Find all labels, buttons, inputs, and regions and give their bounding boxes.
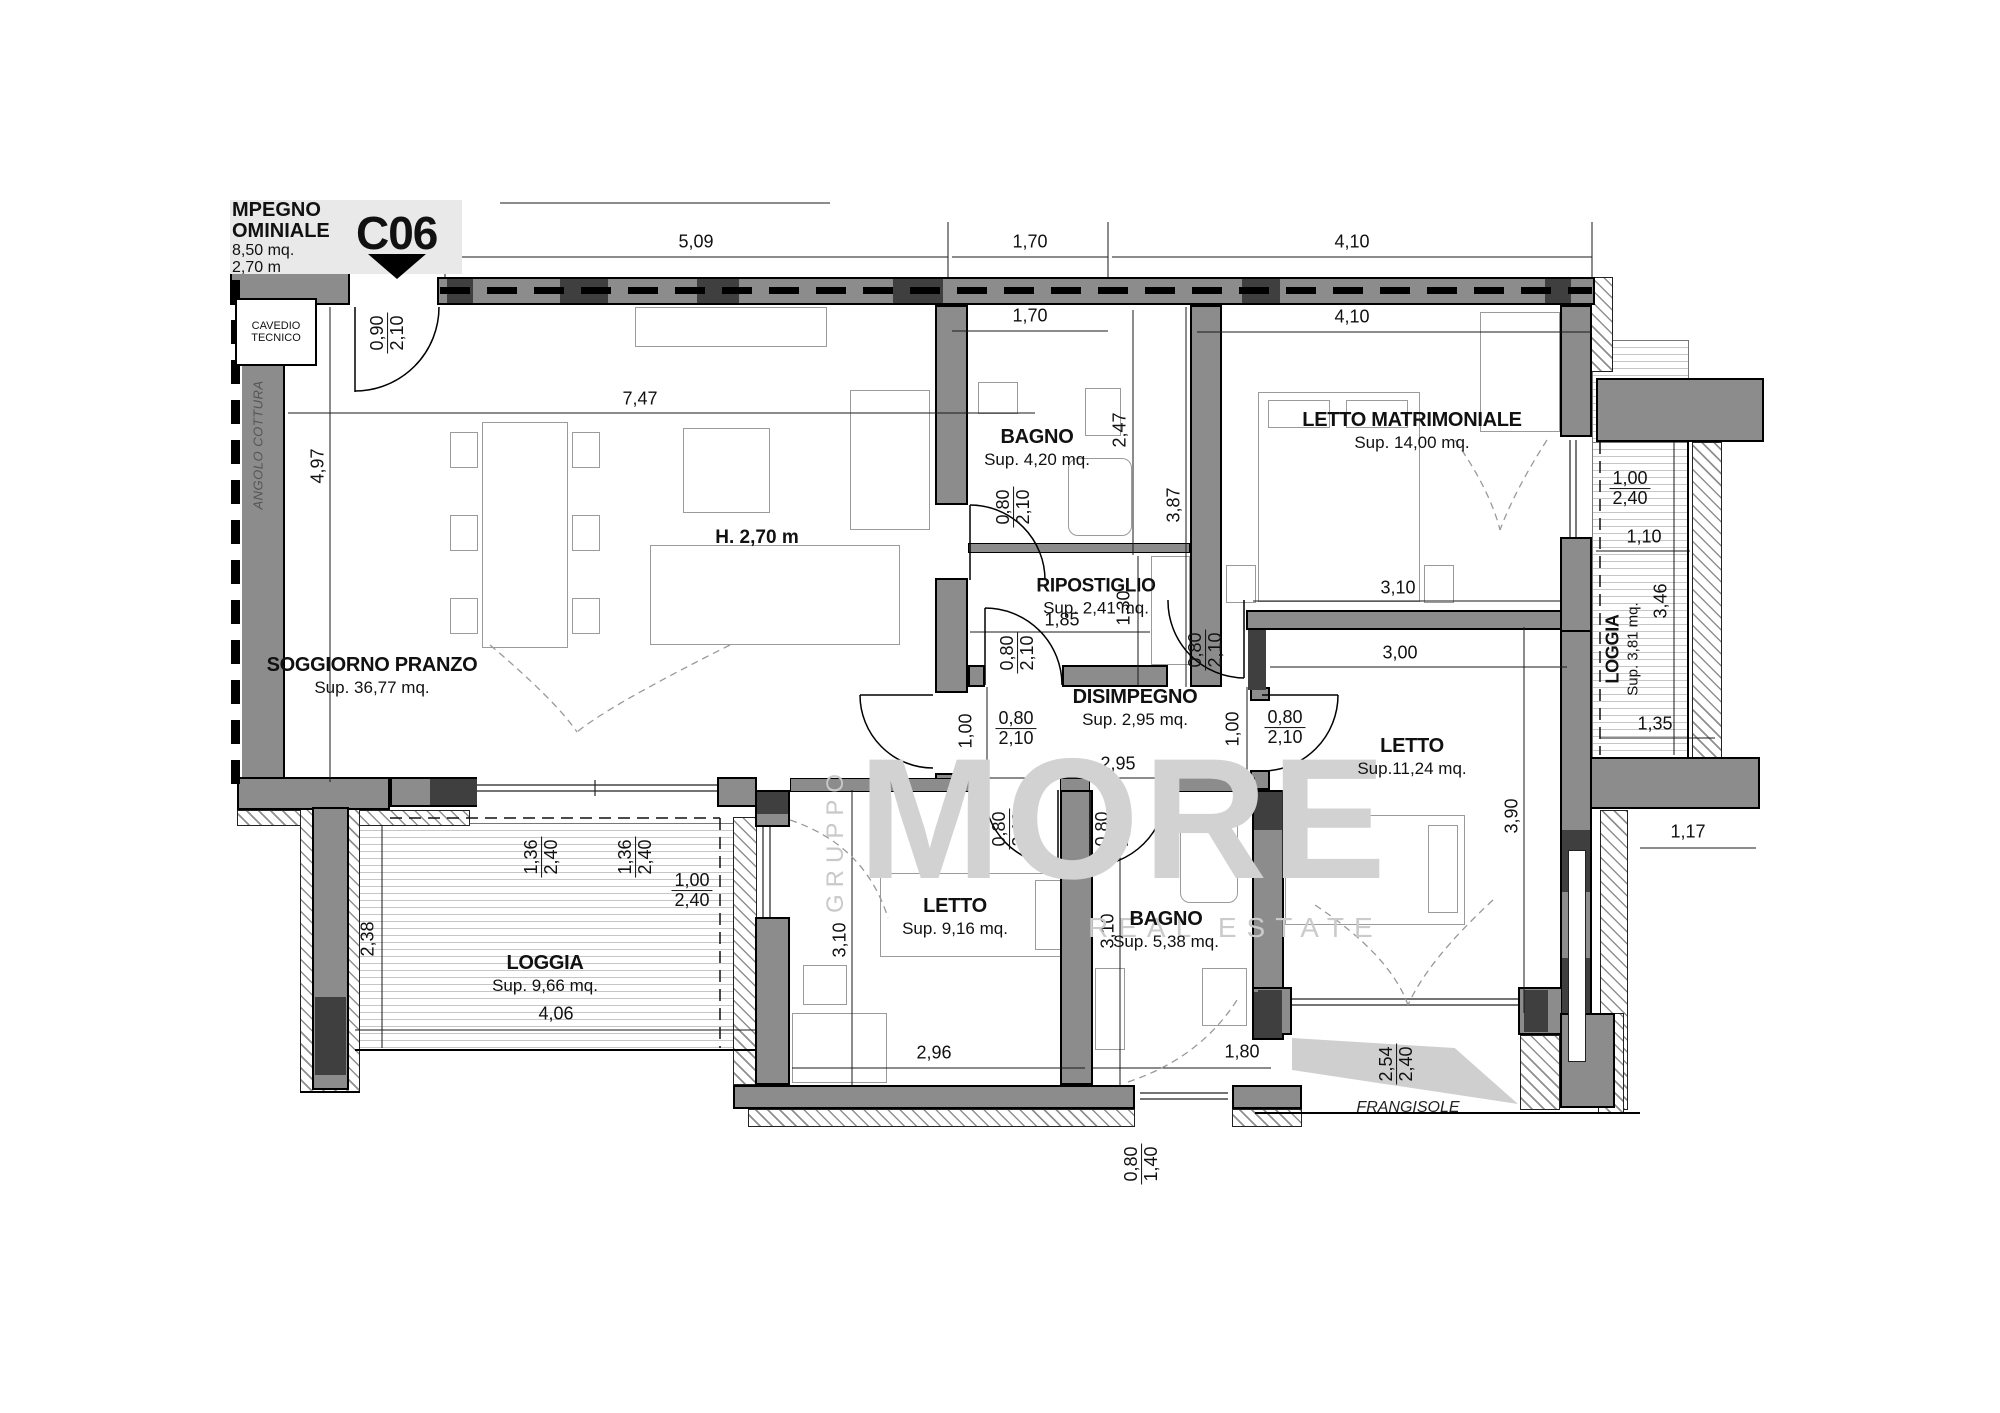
room-area: Sup. 36,77 mq. <box>267 678 478 698</box>
room-name: LOGGIA <box>492 952 598 975</box>
room-name: LETTO MATRIMONIALE <box>1302 409 1521 432</box>
room-label-ripostiglio: RIPOSTIGLIO Sup. 2,41 mq. <box>1036 576 1155 619</box>
window-height: 1,40 <box>1143 1143 1162 1184</box>
window-dim-frangisole: 2,54 2,40 <box>1377 1043 1417 1084</box>
room-area: Sup. 3,81 mq. <box>1625 602 1642 695</box>
dim-soggiorno-h: 4,97 <box>308 448 329 483</box>
window-width: 0,80 <box>1122 1143 1142 1184</box>
window-dim-bagno-notte: 0,80 1,40 <box>1122 1143 1162 1184</box>
dim-soggiorno-w: 7,47 <box>622 389 657 410</box>
watermark-brand: MORE <box>858 733 1390 905</box>
dim-letto-matr-w: 3,10 <box>1380 578 1415 599</box>
unit-code: C06 <box>356 206 437 260</box>
door-height: 2,10 <box>1207 629 1226 670</box>
room-name: LOGGIA <box>1603 602 1624 695</box>
dim-letto-medio-w: 3,00 <box>1382 643 1417 664</box>
room-area: Sup. 4,20 mq. <box>984 450 1090 470</box>
dim-letto-matr-h: 3,87 <box>1164 487 1185 522</box>
room-label-letto-matrimoniale: LETTO MATRIMONIALE Sup. 14,00 mq. <box>1302 409 1521 453</box>
room-area: Sup. 2,95 mq. <box>1073 710 1198 730</box>
dim-loggia-est-w: 1,10 <box>1626 527 1661 548</box>
room-label-bagno-notte: BAGNO Sup. 5,38 mq. <box>1113 908 1219 952</box>
door-height: 2,10 <box>1019 632 1038 673</box>
dim-loggia-est-b: 1,35 <box>1637 714 1672 735</box>
room-label-bagno-servizio: BAGNO Sup. 4,20 mq. <box>984 426 1090 470</box>
room-area: Sup. 9,66 mq. <box>492 976 598 996</box>
dim-top-170a: 1,70 <box>1012 232 1047 253</box>
door-dim-bagno-servizio: 0,80 2,10 <box>994 486 1034 527</box>
window-width: 1,00 <box>671 871 712 891</box>
unit-arrow-icon <box>368 254 426 279</box>
room-area: Sup.11,24 mq. <box>1357 759 1466 779</box>
dim-letto-piccolo-w: 2,96 <box>916 1043 951 1064</box>
door-dim-ripostiglio: 0,80 2,10 <box>998 632 1038 673</box>
note-angolo-cottura: ANGOLO COTTURA <box>251 380 266 509</box>
room-name: SOGGIORNO PRANZO <box>267 654 478 677</box>
room-name: BAGNO <box>984 426 1090 449</box>
window-width: 2,54 <box>1377 1043 1397 1084</box>
window-width: 1,36 <box>522 836 542 877</box>
room-label-letto-piccolo: LETTO Sup. 9,16 mq. <box>902 895 1008 939</box>
dim-loggia-sud-w: 4,06 <box>538 1004 573 1025</box>
dim-right-offset: 1,17 <box>1670 822 1705 843</box>
room-label-soggiorno: SOGGIORNO PRANZO Sup. 36,77 mq. <box>267 654 478 698</box>
window-height: 2,40 <box>543 836 562 877</box>
window-dim-loggia-sud-1: 1,36 2,40 <box>522 836 562 877</box>
dim-top-410a: 4,10 <box>1334 232 1369 253</box>
dim-letto-medio-h: 3,90 <box>1502 798 1523 833</box>
window-height: 2,40 <box>637 836 656 877</box>
dim-bagno-servizio-h: 2,47 <box>1110 412 1131 447</box>
room-label-loggia-est: LOGGIA Sup. 3,81 mq. <box>1603 602 1642 695</box>
room-name: LETTO <box>902 895 1008 918</box>
title-line-4: 2,70 m <box>232 259 462 274</box>
dim-loggia-sud-h: 2,38 <box>358 921 379 956</box>
window-height: 2,40 <box>671 892 712 911</box>
window-height: 2,40 <box>1398 1043 1417 1084</box>
dim-bagno-notte-w: 1,80 <box>1224 1042 1259 1063</box>
room-area: Sup. 9,16 mq. <box>902 919 1008 939</box>
door-width: 0,80 <box>1186 629 1206 670</box>
room-area: Sup. 5,38 mq. <box>1113 932 1219 952</box>
window-height: 2,40 <box>1609 490 1650 509</box>
door-dim-letto-matrimoniale: 0,80 2,10 <box>1186 629 1226 670</box>
watermark-gruppo: GRUPPO <box>822 767 850 913</box>
window-width: 1,00 <box>1609 469 1650 489</box>
room-label-letto-medio: LETTO Sup.11,24 mq. <box>1357 735 1466 779</box>
dim-letto-piccolo-h: 3,10 <box>830 922 851 957</box>
window-dim-loggia-est: 1,00 2,40 <box>1609 469 1650 509</box>
dim-loggia-est-h: 3,46 <box>1651 583 1672 618</box>
room-label-loggia-sud: LOGGIA Sup. 9,66 mq. <box>492 952 598 996</box>
room-name: DISIMPEGNO <box>1073 686 1198 709</box>
door-height: 2,10 <box>1015 486 1034 527</box>
floor-plan-canvas: CAVEDIO TECNICO <box>0 0 2000 1413</box>
dim-top-170b: 1,70 <box>1012 306 1047 327</box>
door-width: 0,90 <box>368 312 388 353</box>
room-name: RIPOSTIGLIO <box>1036 576 1155 598</box>
window-width: 1,36 <box>616 836 636 877</box>
room-name: LETTO <box>1357 735 1466 758</box>
dim-top-410b: 4,10 <box>1334 307 1369 328</box>
door-height: 2,10 <box>389 312 408 353</box>
window-dim-loggia-sud-2: 1,36 2,40 <box>616 836 656 877</box>
window-dim-loggia-sud-3: 1,00 2,40 <box>671 871 712 911</box>
note-height: H. 2,70 m <box>715 527 798 549</box>
room-area: Sup. 14,00 mq. <box>1302 433 1521 453</box>
room-label-disimpegno: DISIMPEGNO Sup. 2,95 mq. <box>1073 686 1198 730</box>
room-name: BAGNO <box>1113 908 1219 931</box>
note-frangisole: FRANGISOLE <box>1356 1099 1459 1117</box>
dim-top-509: 5,09 <box>678 232 713 253</box>
door-width: 0,80 <box>998 632 1018 673</box>
door-dim-entry: 0,90 2,10 <box>368 312 408 353</box>
room-area: Sup. 2,41 mq. <box>1036 599 1155 619</box>
door-width: 0,80 <box>994 486 1014 527</box>
